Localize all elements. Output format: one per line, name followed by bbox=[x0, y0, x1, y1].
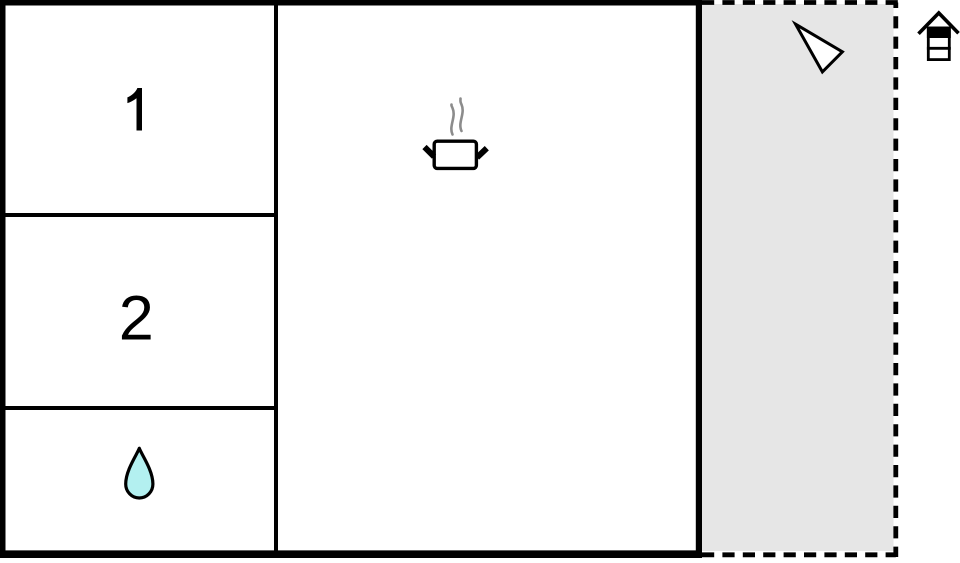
svg-text:2: 2 bbox=[119, 284, 154, 354]
